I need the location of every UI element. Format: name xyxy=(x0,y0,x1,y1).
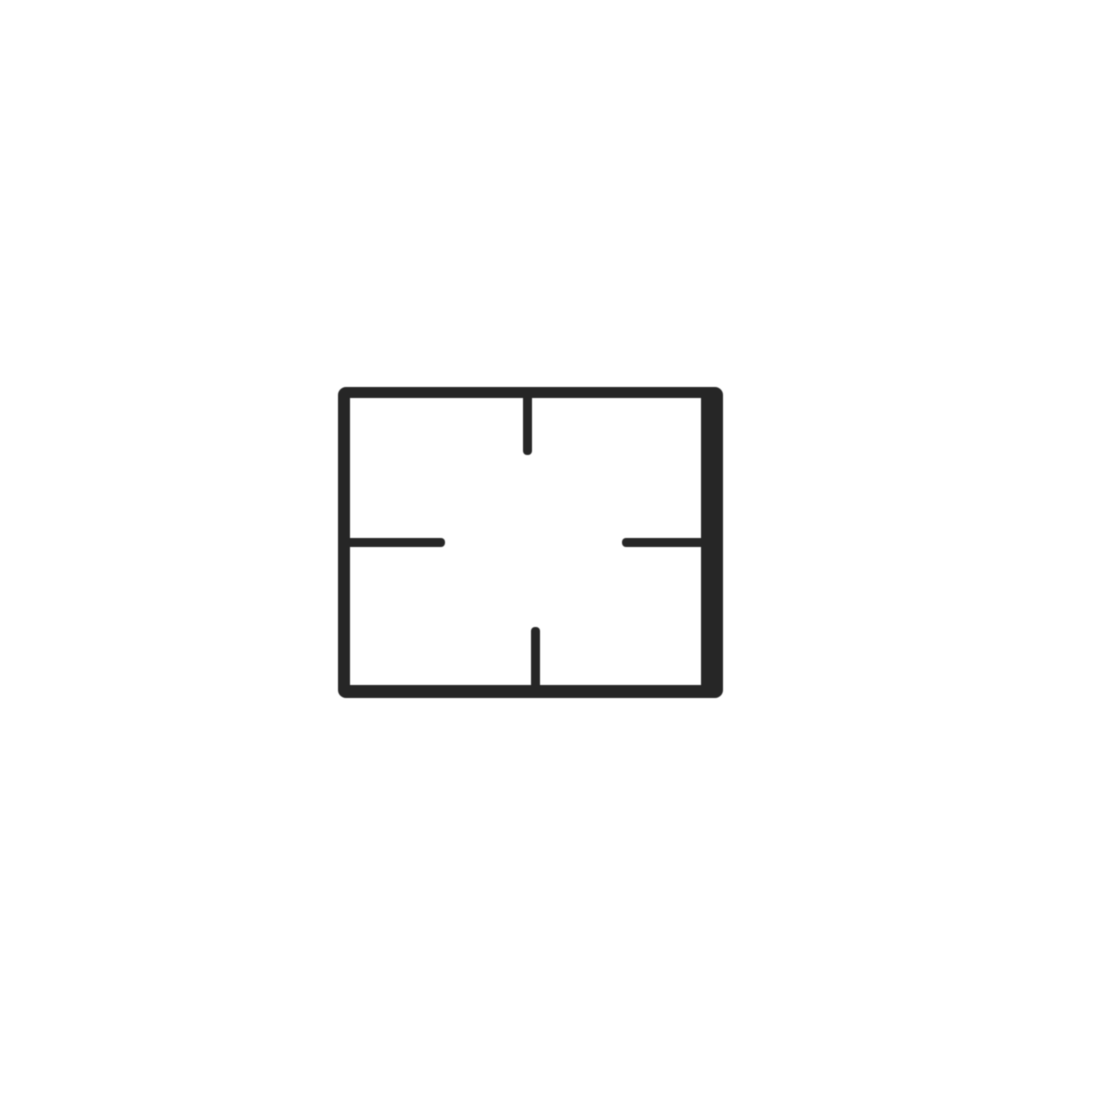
bottom-prong xyxy=(531,627,540,685)
right-prong xyxy=(622,538,701,547)
left-prong xyxy=(350,538,445,547)
pan-support-grid xyxy=(0,0,1100,1100)
top-prong xyxy=(523,398,532,455)
product-photo xyxy=(0,0,1100,1100)
